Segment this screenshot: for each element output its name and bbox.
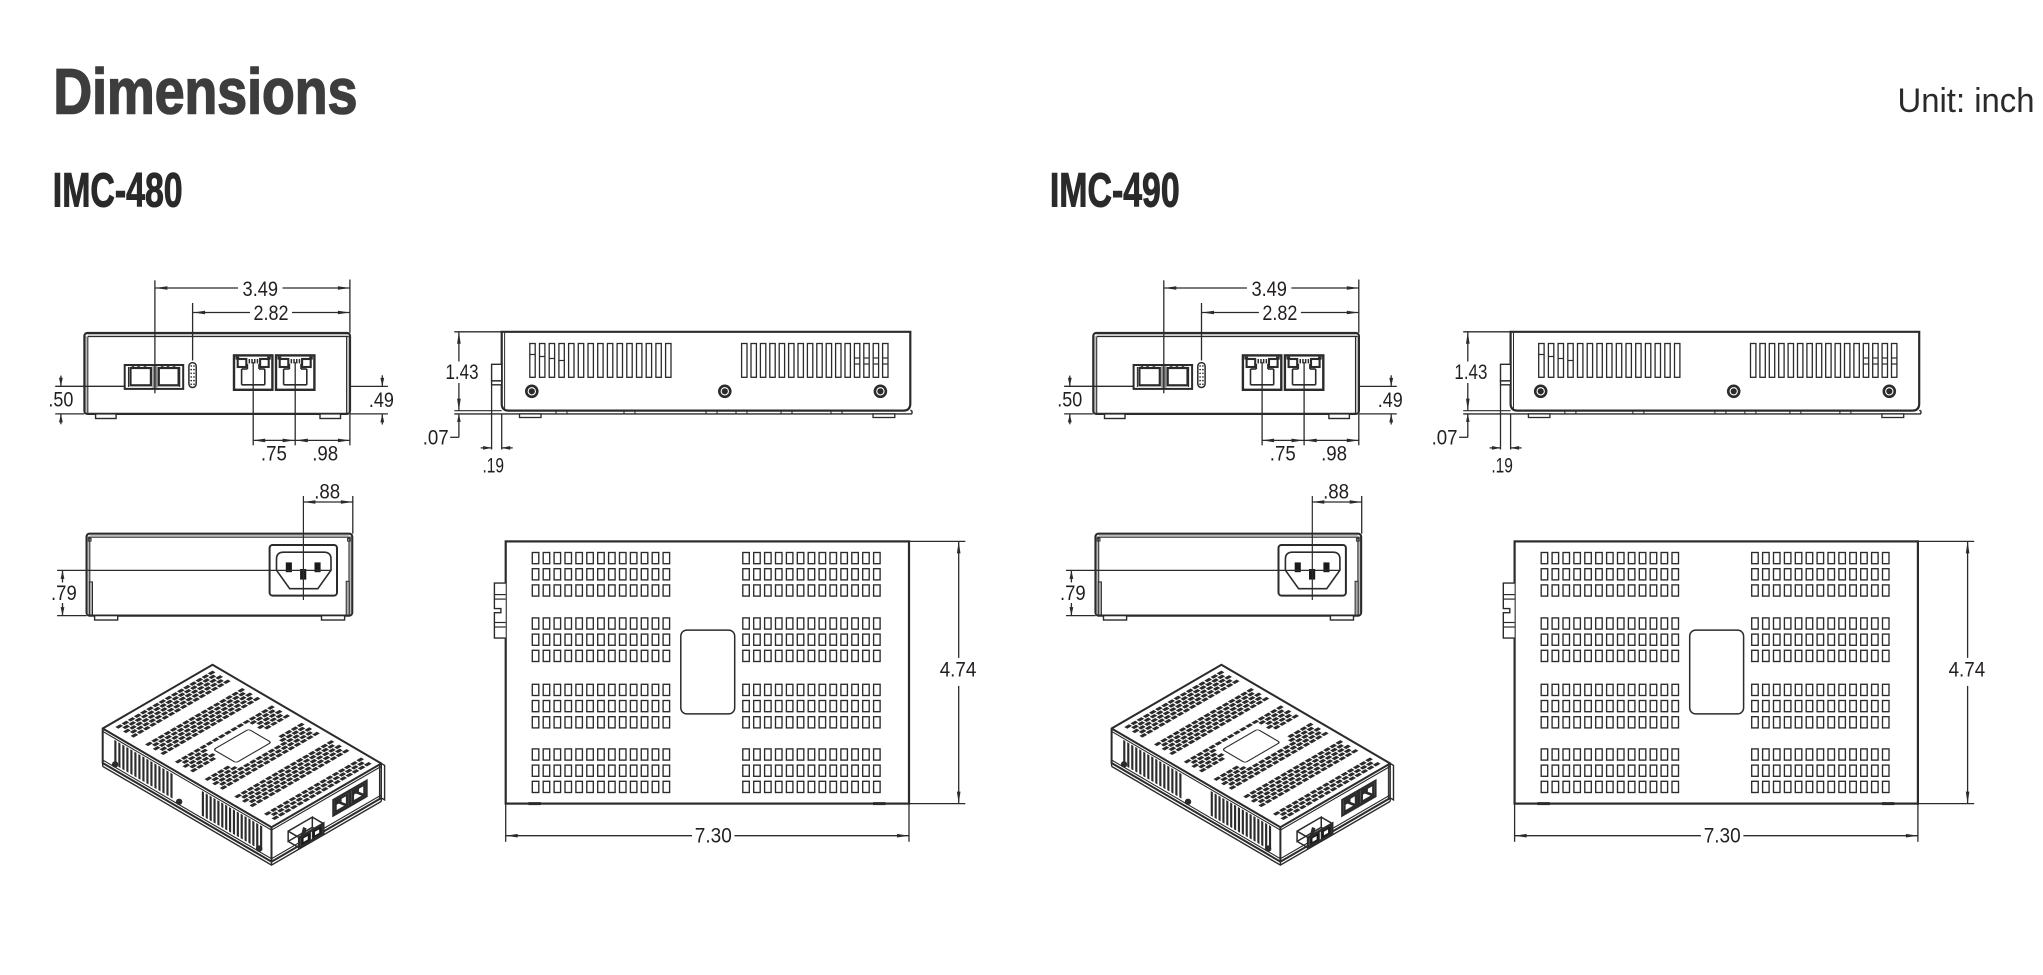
svg-text:2.82: 2.82	[1262, 302, 1297, 325]
svg-text:.49: .49	[369, 389, 394, 412]
svg-text:.79: .79	[1060, 582, 1086, 605]
svg-text:4.74: 4.74	[940, 659, 977, 682]
svg-text:.88: .88	[1323, 481, 1349, 504]
svg-text:.75: .75	[1270, 442, 1296, 465]
svg-text:7.30: 7.30	[695, 824, 732, 847]
svg-text:.50: .50	[1057, 389, 1082, 412]
svg-text:1.43: 1.43	[446, 361, 479, 384]
svg-text:3.49: 3.49	[243, 278, 279, 301]
svg-text:.07: .07	[423, 426, 449, 449]
svg-text:.19: .19	[482, 454, 504, 477]
svg-text:.75: .75	[261, 442, 287, 465]
svg-text:.98: .98	[1321, 442, 1347, 465]
svg-text:IMC-480: IMC-480	[53, 165, 183, 218]
svg-text:Unit: inch: Unit: inch	[1898, 82, 2035, 120]
svg-text:.88: .88	[314, 481, 340, 504]
svg-text:1.43: 1.43	[1454, 361, 1487, 384]
svg-text:.49: .49	[1378, 389, 1403, 412]
svg-text:.07: .07	[1432, 426, 1458, 449]
svg-text:Dimensions: Dimensions	[53, 56, 357, 128]
svg-text:3.49: 3.49	[1251, 278, 1287, 301]
svg-text:.19: .19	[1491, 454, 1513, 477]
svg-text:.79: .79	[51, 582, 77, 605]
svg-text:2.82: 2.82	[254, 302, 289, 325]
svg-text:IMC-490: IMC-490	[1050, 165, 1180, 218]
svg-text:.98: .98	[312, 442, 338, 465]
svg-text:7.30: 7.30	[1704, 824, 1741, 847]
svg-text:4.74: 4.74	[1949, 659, 1986, 682]
svg-text:.50: .50	[48, 389, 73, 412]
